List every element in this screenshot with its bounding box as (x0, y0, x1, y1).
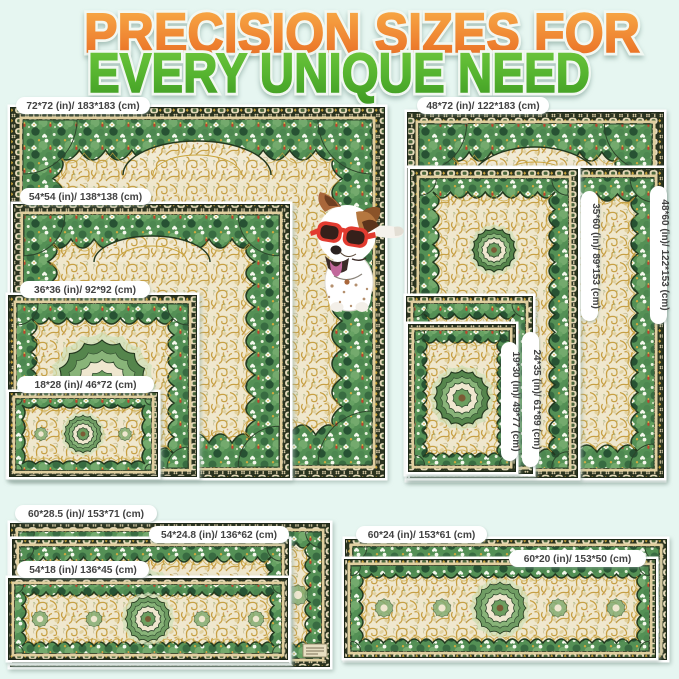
svg-text:18*28 (in)/ 46*72 (cm): 18*28 (in)/ 46*72 (cm) (35, 380, 137, 391)
svg-text:48*72 (in)/ 122*183 (cm): 48*72 (in)/ 122*183 (cm) (426, 101, 539, 112)
svg-text:24*35 (in)/ 61*89 (cm): 24*35 (in)/ 61*89 (cm) (531, 349, 542, 449)
svg-text:60*28.5 (in)/ 153*71 (cm): 60*28.5 (in)/ 153*71 (cm) (28, 509, 144, 520)
svg-text:54*18 (in)/ 136*45 (cm): 54*18 (in)/ 136*45 (cm) (29, 565, 137, 576)
svg-text:54*24.8 (in)/ 136*62 (cm): 54*24.8 (in)/ 136*62 (cm) (161, 530, 277, 541)
svg-text:19*30 (in)/ 49*77 (cm): 19*30 (in)/ 49*77 (cm) (510, 351, 521, 451)
svg-text:48*60 (in)/ 122*153 (cm): 48*60 (in)/ 122*153 (cm) (659, 199, 670, 310)
svg-text:72*72 (in)/ 183*183 (cm): 72*72 (in)/ 183*183 (cm) (26, 101, 139, 112)
svg-text:60*24 (in)/ 153*61 (cm): 60*24 (in)/ 153*61 (cm) (368, 530, 476, 541)
svg-text:36*36 (in)/ 92*92 (cm): 36*36 (in)/ 92*92 (cm) (34, 285, 136, 296)
svg-text:60*20 (in)/ 153*50 (cm): 60*20 (in)/ 153*50 (cm) (524, 554, 632, 565)
svg-text:35*60 (in)/ 89*153 (cm): 35*60 (in)/ 89*153 (cm) (590, 203, 601, 309)
svg-text:54*54 (in)/ 138*138 (cm): 54*54 (in)/ 138*138 (cm) (29, 192, 142, 203)
svg-text:EVERY UNIQUE NEED: EVERY UNIQUE NEED (88, 41, 590, 104)
